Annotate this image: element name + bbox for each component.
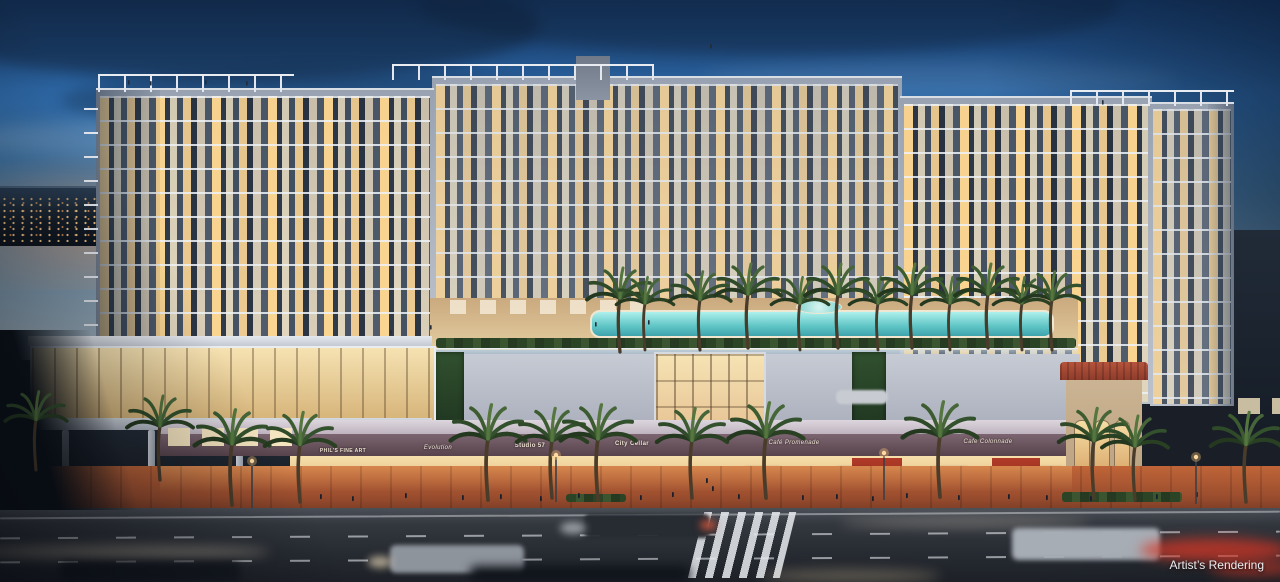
arched-window xyxy=(1114,420,1130,470)
paving-joints xyxy=(0,466,1280,510)
sign-phils-fine-art: PHIL'S FINE ART xyxy=(320,448,366,454)
sign-cafe-colonnade: Café Colonnade xyxy=(964,439,1013,445)
tile-canopy xyxy=(1060,362,1148,380)
background-shop-lights xyxy=(1238,398,1280,414)
rooftop-pergola xyxy=(98,74,294,92)
headlight-trail xyxy=(760,570,940,582)
caption-artists-rendering: Artist’s Rendering xyxy=(1170,558,1265,572)
taillight-glow xyxy=(700,520,716,530)
arched-window xyxy=(1074,420,1090,470)
building-left-wing xyxy=(96,88,434,344)
car xyxy=(1012,528,1160,560)
clerestory-band xyxy=(168,428,304,446)
spa xyxy=(796,300,842,314)
headlight-glow xyxy=(560,522,586,534)
sign-city-cellar: City Cellar xyxy=(615,441,649,447)
car xyxy=(584,514,710,538)
balcony-slabs xyxy=(84,108,98,340)
artist-rendering-scene: PHIL'S FINE ART Evolution Studio 57 City… xyxy=(0,0,1280,582)
rooftop-pergola xyxy=(1070,90,1234,106)
median-hedge xyxy=(1062,492,1182,502)
deck-hedge xyxy=(436,338,1076,348)
side-shade xyxy=(96,90,160,344)
arched-window xyxy=(1094,420,1110,470)
sign-evolution: Evolution xyxy=(424,445,452,451)
sign-cafe-promenade: Café Promenade xyxy=(769,440,820,446)
foreground-landscape xyxy=(0,330,150,510)
pool xyxy=(590,310,1054,338)
headlight-trail xyxy=(840,518,1090,527)
headlight-glow xyxy=(368,556,392,568)
sign-studio-57: Studio 57 xyxy=(515,443,546,449)
tree-pit-planting xyxy=(566,494,626,502)
side-shade xyxy=(1208,104,1234,406)
car-blur xyxy=(60,562,240,582)
car-blur xyxy=(470,566,690,582)
building-right-slab xyxy=(1150,102,1234,406)
car xyxy=(836,390,888,404)
rooftop-pergola xyxy=(392,64,654,80)
